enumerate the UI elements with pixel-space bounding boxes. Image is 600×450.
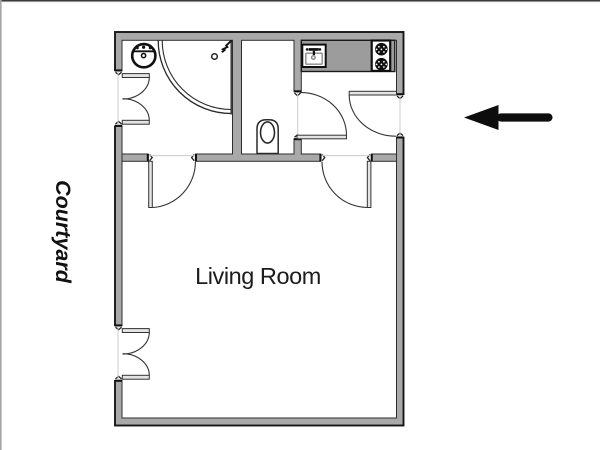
svg-text:Living Room: Living Room xyxy=(195,263,321,289)
svg-text:Courtyard: Courtyard xyxy=(51,180,75,284)
